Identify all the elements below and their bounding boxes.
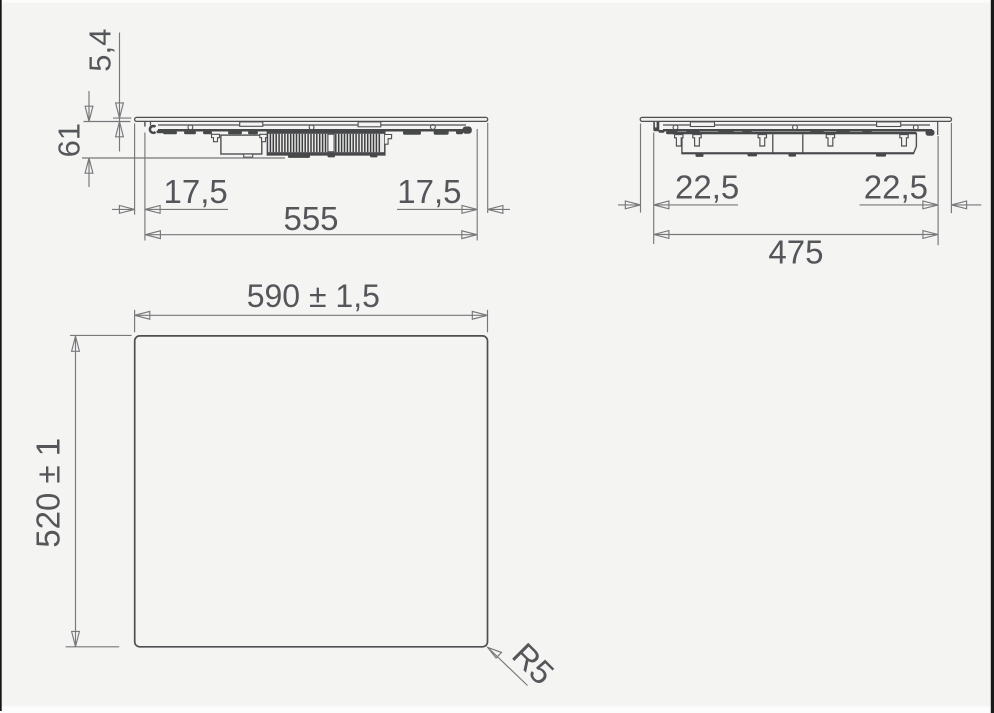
svg-text:555: 555 (283, 200, 338, 237)
svg-text:590 ± 1,5: 590 ± 1,5 (247, 278, 380, 314)
svg-text:520 ± 1: 520 ± 1 (30, 438, 67, 548)
svg-text:61: 61 (52, 123, 87, 157)
svg-text:22,5: 22,5 (864, 168, 928, 205)
svg-text:22,5: 22,5 (675, 168, 739, 205)
svg-text:17,5: 17,5 (397, 173, 461, 210)
svg-text:475: 475 (768, 234, 823, 271)
svg-text:5,4: 5,4 (83, 29, 118, 72)
svg-text:17,5: 17,5 (164, 173, 228, 210)
